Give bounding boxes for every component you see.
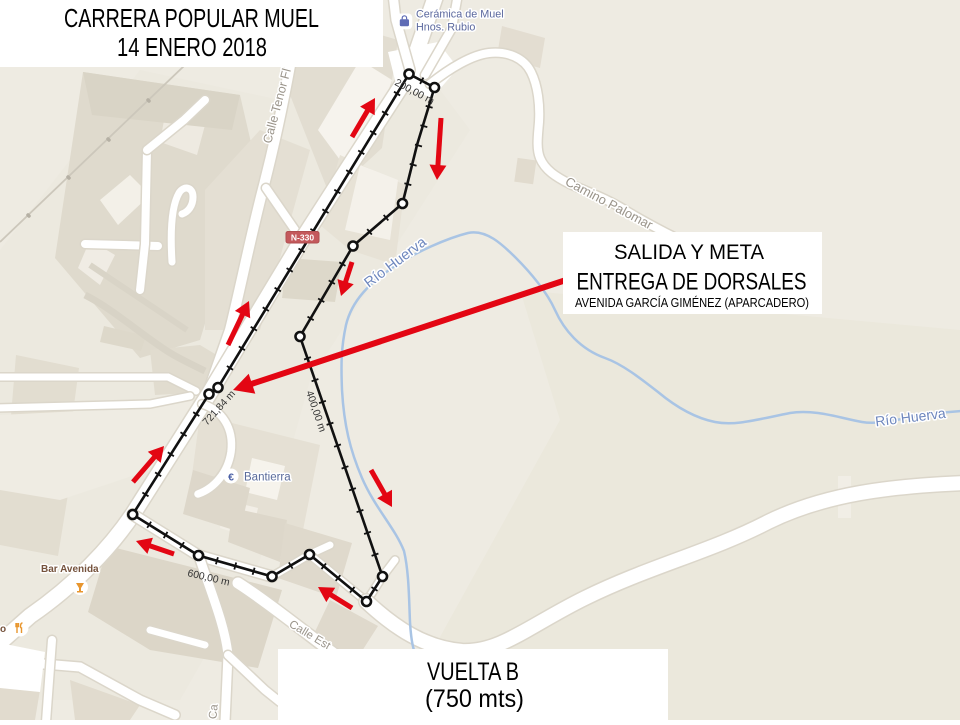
svg-text:Ca: Ca [207, 703, 220, 719]
svg-text:SALIDA Y META: SALIDA Y META [614, 240, 765, 264]
svg-text:(750 mts): (750 mts) [425, 685, 524, 713]
svg-text:VUELTA B: VUELTA B [427, 658, 519, 686]
svg-text:€: € [228, 472, 234, 484]
svg-text:o: o [0, 624, 6, 635]
svg-text:N-330: N-330 [291, 233, 314, 243]
svg-text:ENTREGA DE DORSALES: ENTREGA DE DORSALES [577, 269, 807, 296]
svg-text:Cerámica de Muel: Cerámica de Muel [416, 9, 504, 21]
svg-text:14 ENERO 2018: 14 ENERO 2018 [117, 32, 267, 62]
svg-text:Bar Avenida: Bar Avenida [41, 564, 99, 575]
svg-text:AVENIDA GARCÍA GIMÉNEZ (APARCA: AVENIDA GARCÍA GIMÉNEZ (APARCADERO) [575, 295, 809, 310]
svg-text:Hnos. Rubio: Hnos. Rubio [416, 22, 475, 34]
svg-text:Bantierra: Bantierra [244, 472, 291, 484]
svg-text:CARRERA POPULAR MUEL: CARRERA POPULAR MUEL [64, 3, 319, 33]
